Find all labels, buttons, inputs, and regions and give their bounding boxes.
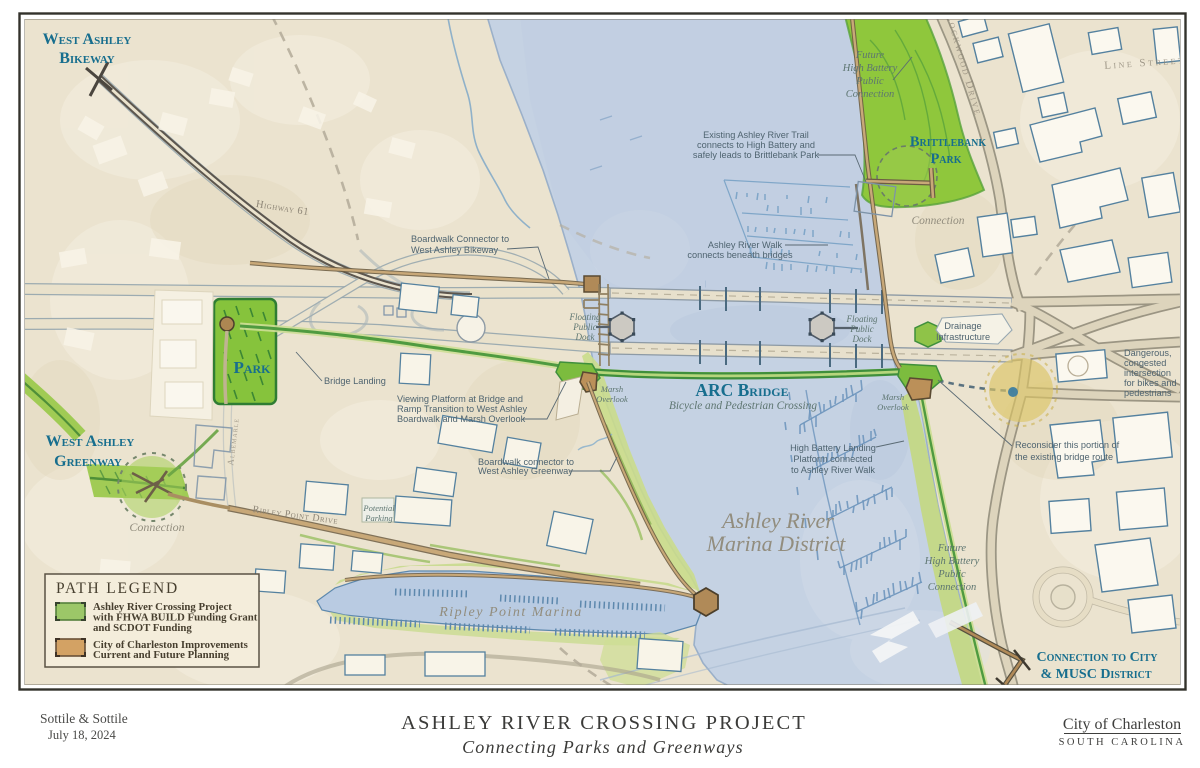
svg-text:Public: Public [937, 569, 966, 580]
svg-text:Connection: Connection [846, 89, 894, 100]
svg-text:Dangerous,: Dangerous, [1124, 348, 1172, 358]
svg-text:to Ashley River Walk: to Ashley River Walk [791, 465, 875, 475]
svg-text:Drainage: Drainage [944, 321, 981, 331]
svg-text:Public: Public [855, 76, 884, 87]
svg-text:High Battery: High Battery [842, 63, 898, 74]
svg-text:Bicycle and Pedestrian Crossin: Bicycle and Pedestrian Crossing [669, 400, 817, 412]
svg-text:PATH LEGEND: PATH LEGEND [56, 580, 179, 597]
svg-text:Ashley River: Ashley River [720, 508, 834, 533]
svg-text:West Ashley: West Ashley [43, 31, 132, 48]
svg-text:and SCDOT Funding: and SCDOT Funding [93, 622, 192, 634]
svg-text:the existing bridge route: the existing bridge route [1015, 452, 1113, 462]
svg-text:Ripley Point Marina: Ripley Point Marina [438, 605, 583, 620]
svg-text:safely leads to Brittlebank Pa: safely leads to Brittlebank Park [693, 150, 820, 160]
svg-text:Existing Ashley River Trail: Existing Ashley River Trail [703, 130, 809, 140]
svg-text:Connection: Connection [928, 582, 976, 593]
svg-text:Marsh: Marsh [600, 384, 623, 394]
svg-text:pedestrians: pedestrians [1124, 388, 1172, 398]
svg-text:Parking: Parking [364, 513, 392, 523]
svg-text:Potential: Potential [362, 503, 395, 513]
svg-text:Marsh: Marsh [881, 392, 904, 402]
svg-text:SOUTH CAROLINA: SOUTH CAROLINA [1059, 737, 1186, 748]
svg-text:Dock: Dock [575, 332, 596, 342]
svg-text:Sottile & Sottile: Sottile & Sottile [40, 711, 128, 726]
svg-text:Future: Future [855, 50, 885, 61]
svg-text:Connection to City: Connection to City [1037, 650, 1159, 665]
svg-text:Park: Park [233, 358, 271, 377]
svg-text:Marina District: Marina District [706, 531, 847, 556]
svg-text:Boardwalk and Marsh Overlook: Boardwalk and Marsh Overlook [397, 414, 526, 424]
svg-text:Public: Public [572, 322, 597, 332]
svg-text:Bridge Landing: Bridge Landing [324, 376, 386, 386]
svg-text:Brittlebank: Brittlebank [910, 134, 987, 150]
svg-text:Ashley River Walk: Ashley River Walk [708, 240, 783, 250]
svg-text:connects beneath bridges: connects beneath bridges [687, 250, 793, 260]
svg-text:& MUSC District: & MUSC District [1040, 667, 1151, 682]
svg-text:ASHLEY RIVER CROSSING PROJECT: ASHLEY RIVER CROSSING PROJECT [401, 712, 807, 734]
svg-text:Park: Park [930, 151, 961, 167]
svg-text:High Battery: High Battery [924, 556, 980, 567]
svg-text:Overlook: Overlook [877, 402, 909, 412]
svg-text:City of Charleston: City of Charleston [1063, 716, 1181, 733]
svg-text:Viewing Platform at Bridge and: Viewing Platform at Bridge and [397, 394, 523, 404]
svg-text:Reconsider this portion of: Reconsider this portion of [1015, 440, 1120, 450]
svg-text:Ramp Transition to West Ashley: Ramp Transition to West Ashley [397, 404, 527, 414]
svg-text:Connecting Parks and Greenways: Connecting Parks and Greenways [462, 737, 744, 757]
svg-text:Greenway: Greenway [54, 453, 122, 470]
svg-text:Current and Future Planning: Current and Future Planning [93, 649, 230, 661]
svg-text:congested: congested [1124, 358, 1166, 368]
svg-text:West Ashley Greenway: West Ashley Greenway [478, 466, 573, 476]
svg-text:Overlook: Overlook [596, 394, 628, 404]
svg-text:Connection: Connection [129, 520, 184, 534]
svg-text:intersection: intersection [1124, 368, 1171, 378]
svg-text:Infrastructure: Infrastructure [936, 332, 990, 342]
svg-text:Platform connected: Platform connected [793, 454, 872, 464]
svg-text:Floating: Floating [846, 314, 878, 324]
svg-text:Boardwalk Connector to: Boardwalk Connector to [411, 234, 509, 244]
svg-text:Floating: Floating [569, 312, 601, 322]
svg-text:Bikeway: Bikeway [59, 50, 115, 67]
svg-text:ARC Bridge: ARC Bridge [695, 380, 788, 400]
svg-text:Public: Public [849, 324, 874, 334]
svg-text:Future: Future [937, 543, 967, 554]
svg-text:July 18, 2024: July 18, 2024 [48, 728, 116, 742]
svg-text:Dock: Dock [852, 334, 873, 344]
svg-text:Connection: Connection [911, 215, 964, 227]
svg-text:West Ashley: West Ashley [46, 433, 135, 450]
svg-text:for bikes and: for bikes and [1124, 378, 1177, 388]
svg-text:connects to High Battery and: connects to High Battery and [697, 140, 815, 150]
svg-text:High Battery Landing: High Battery Landing [790, 443, 876, 453]
svg-text:West Ashley Bikeway: West Ashley Bikeway [411, 245, 499, 255]
